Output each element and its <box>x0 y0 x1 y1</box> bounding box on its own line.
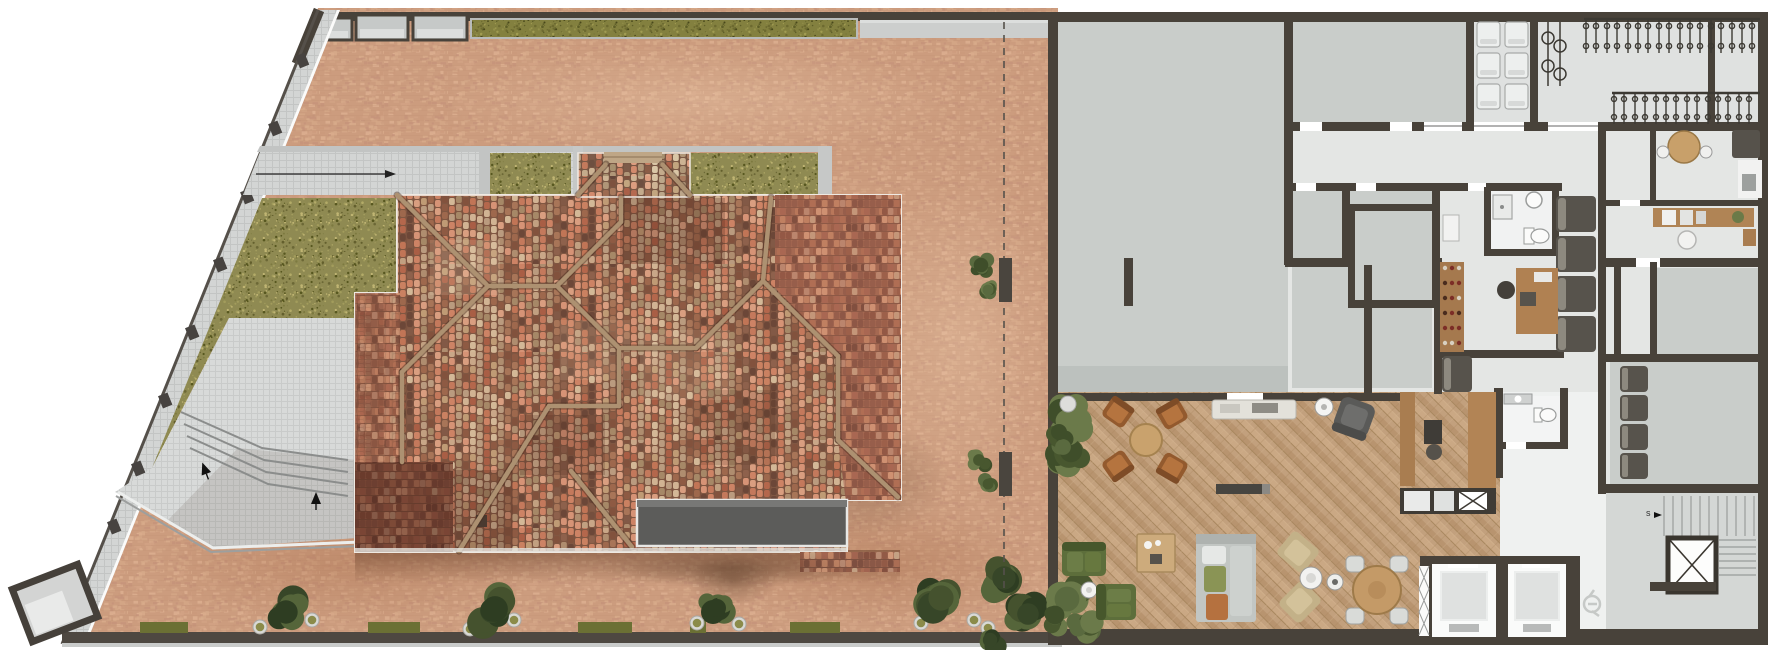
svg-text:s: s <box>1646 508 1651 518</box>
